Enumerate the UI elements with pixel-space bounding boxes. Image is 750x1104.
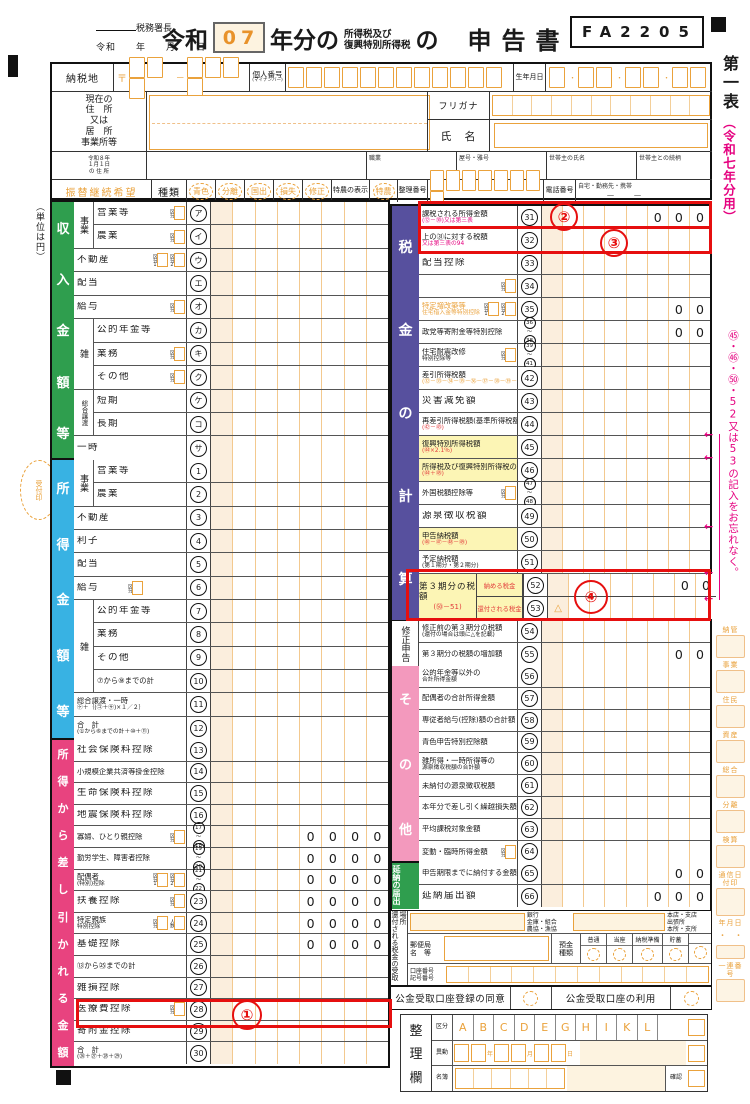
amount-field[interactable] [542, 413, 710, 435]
amount-field[interactable] [211, 507, 388, 529]
kubun-box[interactable] [505, 279, 516, 293]
amount-field[interactable] [211, 978, 388, 999]
amount-field[interactable]: 00 [542, 863, 710, 884]
birth-date-field[interactable]: ・ ・ ・ [546, 64, 712, 92]
row-label: ⑬から㉕までの計 [74, 956, 186, 977]
comb-cell [344, 390, 366, 412]
entry-box[interactable] [324, 67, 340, 88]
comb-cell [562, 775, 583, 796]
comb-cell [583, 367, 604, 389]
row-number-circle: 56 [521, 668, 538, 685]
entry-comb[interactable] [455, 1068, 565, 1089]
row-number-circle: 26 [190, 958, 207, 975]
comb-cell [668, 436, 689, 458]
comb-cell [211, 848, 232, 869]
entry-box[interactable] [468, 67, 484, 88]
phone-field[interactable]: 自宅・勤務先・携帯 － － [576, 180, 712, 202]
deposit-type-nozei[interactable]: 納税準備 [632, 934, 662, 963]
entry-box[interactable] [510, 170, 524, 191]
entry-box[interactable] [690, 67, 706, 88]
entry-box[interactable] [446, 170, 460, 191]
comb-cell [277, 530, 299, 552]
amount-field[interactable] [542, 666, 710, 687]
seiri-letter[interactable]: K [617, 1015, 638, 1040]
entry-box[interactable] [625, 67, 641, 88]
row-label-text: 公的年金等 [97, 606, 186, 616]
kubun-box[interactable] [174, 253, 185, 267]
kubun-box[interactable] [174, 370, 185, 384]
comb-cell [604, 863, 625, 884]
furigana-field[interactable] [490, 92, 712, 120]
amount-field[interactable] [211, 717, 388, 740]
amount-field[interactable]: 0000 [211, 848, 388, 869]
amount-field[interactable]: 0000 [211, 870, 388, 891]
comb-cell [604, 367, 625, 389]
amount-field[interactable]: 00 [542, 643, 710, 666]
row-label-text: 不動産 [77, 513, 186, 523]
type-aoiro[interactable]: 青色 [187, 180, 216, 202]
amount-field[interactable] [211, 530, 388, 552]
type-sonshitsu[interactable]: 損失 [274, 180, 303, 202]
amount-field[interactable]: 00 [542, 298, 710, 320]
admin-box[interactable] [716, 740, 745, 763]
form-row: 生命保険料控除15 [74, 783, 388, 805]
entry-box[interactable] [486, 67, 502, 88]
form-row: 長期コ [74, 413, 388, 436]
comb-cell [604, 666, 625, 687]
comb-cell [299, 507, 321, 529]
comb-cell [277, 870, 299, 891]
comb-cell [647, 321, 668, 343]
element: 農業 [97, 231, 168, 241]
kubun-box[interactable] [488, 302, 499, 316]
entry-box[interactable] [462, 170, 476, 191]
row-number: 64 [517, 841, 542, 863]
amount-field[interactable] [211, 805, 388, 826]
comb-cell [277, 483, 299, 505]
jan1-address-field[interactable] [147, 152, 367, 180]
comb-cell [562, 436, 583, 458]
comb-cell [528, 1069, 546, 1088]
comb-cell [366, 978, 388, 999]
comb-cell [542, 505, 562, 527]
amount-field[interactable]: 000 [542, 885, 710, 907]
row-number-circle: 4 [190, 533, 207, 550]
entry-box[interactable] [360, 67, 376, 88]
comb-cell [232, 934, 254, 955]
seiri-kakunin-box[interactable] [688, 1070, 705, 1087]
kubun-box[interactable] [144, 581, 157, 595]
amount-field[interactable] [211, 670, 388, 692]
entry-box[interactable] [478, 170, 492, 191]
comb-cell [321, 553, 343, 575]
row-label: 給与区分 [74, 577, 186, 599]
kubun-unit: 区分 [169, 830, 185, 844]
entry-box[interactable] [342, 67, 358, 88]
amount-field[interactable] [211, 553, 388, 575]
row-number-circle: 23 [190, 893, 207, 910]
amount-field[interactable] [211, 623, 388, 645]
comb-cell [647, 753, 668, 774]
entry-box[interactable] [378, 67, 394, 88]
kubun-box[interactable] [505, 348, 516, 362]
form-row: 扶養控除区分230000 [74, 891, 388, 913]
entry-box[interactable] [643, 67, 659, 88]
seiri-number-field[interactable] [428, 180, 544, 202]
amount-field[interactable] [211, 693, 388, 715]
amount-field[interactable] [211, 225, 388, 247]
comb-cell [232, 530, 254, 552]
comb-cell [255, 366, 277, 388]
form-row: 寡婦、ひとり親控除区分17～180000 [74, 826, 388, 848]
admin-box[interactable] [716, 775, 745, 798]
amount-field[interactable] [211, 600, 388, 622]
comb-cell [577, 967, 599, 982]
amount-field[interactable] [211, 390, 388, 412]
kubun-box[interactable] [132, 581, 143, 595]
kubun-box[interactable] [174, 830, 185, 844]
comb-cell [344, 805, 366, 826]
type-kokushutsu[interactable]: 国出 [245, 180, 274, 202]
seiri-meibo-field[interactable] [453, 1066, 567, 1091]
kubun-box[interactable] [174, 206, 185, 220]
deposit-type-blank[interactable] [688, 934, 711, 963]
element: 外国税額控除等 [422, 489, 499, 497]
form-row: 配当エ [74, 272, 388, 295]
element: ⑦から⑨までの計 [97, 677, 186, 685]
admin-box[interactable] [716, 888, 745, 916]
amount-field[interactable] [211, 762, 388, 783]
comb-cell [542, 732, 562, 753]
entry-box[interactable] [430, 170, 444, 191]
entry-box[interactable] [672, 67, 688, 88]
kubun-box[interactable] [157, 916, 168, 930]
entry-box[interactable] [187, 57, 203, 78]
amount-field[interactable] [211, 413, 388, 435]
row-number-circle: 49 [521, 508, 538, 525]
comb-cell [626, 620, 647, 642]
entry-box[interactable] [205, 57, 221, 78]
admin-item-label: 総合 [715, 766, 746, 774]
comb-cell [542, 367, 562, 389]
seiri-letter[interactable]: A [453, 1015, 474, 1040]
amount-field[interactable] [211, 956, 388, 977]
comb-cell [211, 343, 232, 365]
row-label: 小規模企業共済等掛金控除 [74, 762, 186, 783]
entry-box[interactable] [578, 67, 594, 88]
element: 短期 [97, 396, 186, 406]
row-label: 区分 [419, 275, 517, 297]
element: 政党等寄附金等特別控除 [422, 328, 517, 336]
comb-cell [546, 1069, 564, 1088]
comb-cell [604, 775, 625, 796]
amount-field[interactable] [211, 577, 388, 599]
form-row: 延納届出額66000 [419, 885, 710, 907]
amount-field[interactable] [542, 797, 710, 818]
amount-field[interactable] [542, 753, 710, 774]
form-row: その他区分ク [74, 366, 388, 389]
entry-comb[interactable] [446, 966, 709, 983]
kubun-box[interactable] [174, 873, 185, 887]
comb-cell [232, 272, 254, 294]
row-label: 給与区分 [74, 296, 186, 318]
entry-box[interactable] [288, 67, 304, 88]
kubun-box[interactable] [158, 581, 171, 595]
amount-field[interactable] [542, 436, 710, 458]
amount-field[interactable] [211, 272, 388, 294]
comb-cell [277, 762, 299, 783]
householder-relation-field[interactable]: 世帯主との続柄 [637, 152, 712, 180]
comb-cell [562, 797, 583, 818]
comb-cell [626, 390, 647, 412]
taxpayer-info-block: 納税地 〒 － 個人番号 (マイナンバー) 生年月日 ・ ・ ・ 現在の住 所又… [50, 62, 712, 200]
amount-field[interactable] [211, 460, 388, 482]
postal-code-field[interactable]: 〒 － [114, 64, 250, 92]
bank-name-field[interactable] [410, 913, 525, 931]
amount-field[interactable] [542, 732, 710, 753]
comb-cell [456, 1069, 473, 1088]
element: 17 [193, 822, 205, 834]
amount-field[interactable] [542, 344, 710, 366]
seiri-meibo-label: 名簿 [432, 1066, 453, 1091]
row-number: カ [186, 319, 211, 341]
row-label-text: 公的年金等 [97, 325, 186, 335]
entry-box[interactable] [596, 67, 612, 88]
row-label: 延納届出額 [419, 885, 517, 907]
row-label-text: 営業等 [97, 208, 168, 218]
row-label: 特定増改築等住宅借入金等特別控除区分1区分2 [419, 298, 517, 320]
deposit-type-futsu[interactable]: 普通 [580, 934, 606, 963]
title-shinkokusho: 申告書 [468, 29, 570, 53]
entry-box[interactable] [396, 67, 412, 88]
type-shusei[interactable]: 修正 [303, 180, 332, 202]
comb-cell [277, 1042, 299, 1064]
amount-field[interactable] [542, 620, 710, 642]
comb-cell [583, 732, 604, 753]
comb-cell [583, 344, 604, 366]
amount-field[interactable] [542, 252, 710, 274]
comb-cell [626, 666, 647, 687]
public-account-consent-circle[interactable] [510, 987, 551, 1009]
amount-field[interactable] [211, 343, 388, 365]
comb-cell [583, 775, 604, 796]
post-office-field[interactable] [444, 936, 549, 961]
name-field[interactable] [490, 120, 712, 152]
comb-cell [626, 436, 647, 458]
amount-field[interactable] [542, 459, 710, 481]
type-bunri[interactable]: 分離 [216, 180, 245, 202]
seiri-check-box-2[interactable] [688, 1045, 705, 1062]
amount-field[interactable] [211, 1042, 388, 1064]
entry-box[interactable] [432, 67, 448, 88]
seiri-letter[interactable]: G [556, 1015, 577, 1040]
kubun-box[interactable] [505, 486, 516, 500]
kubun-box[interactable] [505, 302, 516, 316]
form-row: 雑所得・一時所得等の源泉徴収税額の合計額60 [419, 753, 710, 775]
kubun-box[interactable] [174, 347, 185, 361]
amount-field[interactable] [542, 275, 710, 297]
amount-field[interactable] [542, 367, 710, 389]
householder-name-field[interactable]: 世帯主の氏名 [547, 152, 637, 180]
comb-cell [604, 436, 625, 458]
amount-field[interactable] [211, 740, 388, 761]
element: その他 [97, 372, 168, 382]
row-group-label: 事業 [74, 460, 94, 507]
comb-cell [277, 956, 299, 977]
comb-cell [510, 1069, 528, 1088]
account-number-field[interactable] [446, 966, 709, 983]
row-number: ウ [186, 249, 211, 271]
comb-cell [668, 390, 689, 412]
amount-field[interactable] [211, 249, 388, 271]
amount-field[interactable] [211, 296, 388, 318]
element: 配当控除 [422, 258, 517, 268]
amount-field[interactable] [542, 710, 710, 731]
comb-cell: 0 [344, 891, 366, 912]
deposit-type-toza[interactable]: 当座 [606, 934, 632, 963]
seiri-letter[interactable]: H [576, 1015, 597, 1040]
public-account-use-circle[interactable] [670, 987, 711, 1009]
comb-cell [604, 482, 625, 504]
personal-number-field[interactable] [286, 64, 514, 92]
kubun-unit: 区分2 [169, 253, 185, 267]
comb-cell [255, 717, 277, 740]
comb-cell [647, 775, 668, 796]
branch-name-field[interactable] [573, 913, 665, 931]
seiri-ido-date-field[interactable]: 年 月 日 [453, 1041, 580, 1066]
entry-box[interactable] [450, 67, 466, 88]
comb-cell [344, 202, 366, 224]
amount-field[interactable] [542, 528, 710, 550]
element: ㋘＋｛(㋙＋㋚)×１／２｝ [77, 705, 186, 711]
amount-field[interactable] [211, 783, 388, 804]
kubun-group: 区分 [169, 894, 185, 908]
comb-cell [668, 482, 689, 504]
admin-box[interactable] [716, 979, 745, 1002]
amount-field[interactable] [211, 483, 388, 505]
amount-field[interactable] [211, 366, 388, 388]
row-number-circle: キ [190, 345, 207, 362]
row-number: 44 [517, 413, 542, 435]
entry-box[interactable] [306, 67, 322, 88]
comb-cell [211, 413, 232, 435]
amount-field[interactable]: 00 [542, 321, 710, 343]
amount-field[interactable]: 0000 [211, 826, 388, 847]
row-number: 56 [517, 666, 542, 687]
seiri-letter[interactable]: I [597, 1015, 618, 1040]
seiri-check-box-1[interactable] [688, 1019, 705, 1036]
comb-cell [668, 505, 689, 527]
row-number-circle: エ [190, 275, 207, 292]
amount-field[interactable]: 0000 [211, 891, 388, 912]
comb-cell [647, 732, 668, 753]
comb-cell [299, 413, 321, 435]
admin-box[interactable] [716, 845, 745, 868]
kubun-box[interactable] [157, 253, 168, 267]
amount-field[interactable] [211, 202, 388, 224]
amount-field[interactable] [542, 688, 710, 709]
comb-cell [277, 460, 299, 482]
seiri-letter[interactable]: C [494, 1015, 515, 1040]
seiri-letter[interactable]: L [638, 1015, 659, 1040]
entry-box[interactable] [414, 67, 430, 88]
seiri-letter[interactable]: D [515, 1015, 536, 1040]
entry-box[interactable] [223, 57, 239, 78]
seiri-letter-cells[interactable]: ABCDEGHIKL [453, 1015, 658, 1040]
amount-field[interactable] [211, 647, 388, 669]
comb-cell: 0 [299, 848, 321, 869]
kubun-box[interactable] [174, 916, 185, 930]
seiri-letter[interactable]: B [474, 1015, 495, 1040]
element: 配当 [77, 559, 186, 569]
row-label-text: 総合譲渡・一時㋘＋｛(㋙＋㋚)×１／２｝ [77, 697, 186, 711]
element: 39 [524, 340, 536, 352]
form-title: 令和 07 年分の 所得税及び復興特別所得税 の 申告書 [162, 22, 570, 53]
entry-box[interactable] [147, 57, 163, 78]
entry-comb[interactable] [492, 95, 710, 116]
comb-cell [211, 249, 232, 271]
admin-box[interactable] [716, 810, 745, 833]
comb-cell [232, 891, 254, 912]
comb-cell [626, 344, 647, 366]
comb-cell [255, 413, 277, 435]
amount-field[interactable] [542, 390, 710, 412]
comb-cell [232, 202, 254, 224]
comb-cell: 0 [321, 826, 343, 847]
amount-field[interactable] [542, 819, 710, 840]
kubun-box[interactable] [174, 230, 185, 244]
row-label: 青色申告特別控除額 [419, 732, 517, 753]
entry-box[interactable] [549, 67, 565, 88]
amount-field[interactable] [542, 841, 710, 863]
comb-cell [321, 366, 343, 388]
entry-box[interactable] [129, 57, 145, 78]
seiri-letter[interactable]: E [535, 1015, 556, 1040]
comb-cell [511, 967, 533, 982]
kubun-box[interactable] [174, 300, 185, 314]
amount-field[interactable] [542, 482, 710, 504]
deposit-type-chochiku[interactable]: 貯蓄 [662, 934, 688, 963]
kubun-box[interactable] [157, 873, 168, 887]
jan1-address-label: 令和８年１月１日の 住 所 [52, 152, 147, 180]
amount-field[interactable] [542, 505, 710, 527]
amount-field[interactable] [211, 319, 388, 341]
comb-cell [583, 436, 604, 458]
element: 一時 [77, 443, 186, 453]
entry-box[interactable] [494, 170, 508, 191]
entry-box[interactable] [526, 170, 540, 191]
kubun-box[interactable] [172, 581, 185, 595]
admin-box[interactable] [716, 945, 745, 959]
admin-box[interactable] [716, 705, 745, 728]
row-label: 修正前の第３期分の税額(還付の場合は頭に△を記載) [419, 620, 517, 642]
comb-cell [299, 225, 321, 247]
amount-field[interactable] [211, 436, 388, 459]
form-row: ⑦から⑨までの計10 [74, 670, 388, 693]
kubun-box[interactable] [505, 845, 516, 859]
tokuno-field[interactable]: 特農 [370, 180, 398, 202]
row-number: キ [186, 343, 211, 365]
amount-field[interactable]: 0000 [211, 913, 388, 934]
amount-field[interactable]: 0000 [211, 934, 388, 955]
comb-cell: 0 [344, 826, 366, 847]
comb-cell [211, 956, 232, 977]
comb-cell [542, 275, 562, 297]
element: 配偶者の合計所得金額 [422, 694, 517, 702]
row-number-circle: 24 [190, 915, 207, 932]
amount-field[interactable] [542, 775, 710, 796]
kubun-box[interactable] [174, 894, 185, 908]
